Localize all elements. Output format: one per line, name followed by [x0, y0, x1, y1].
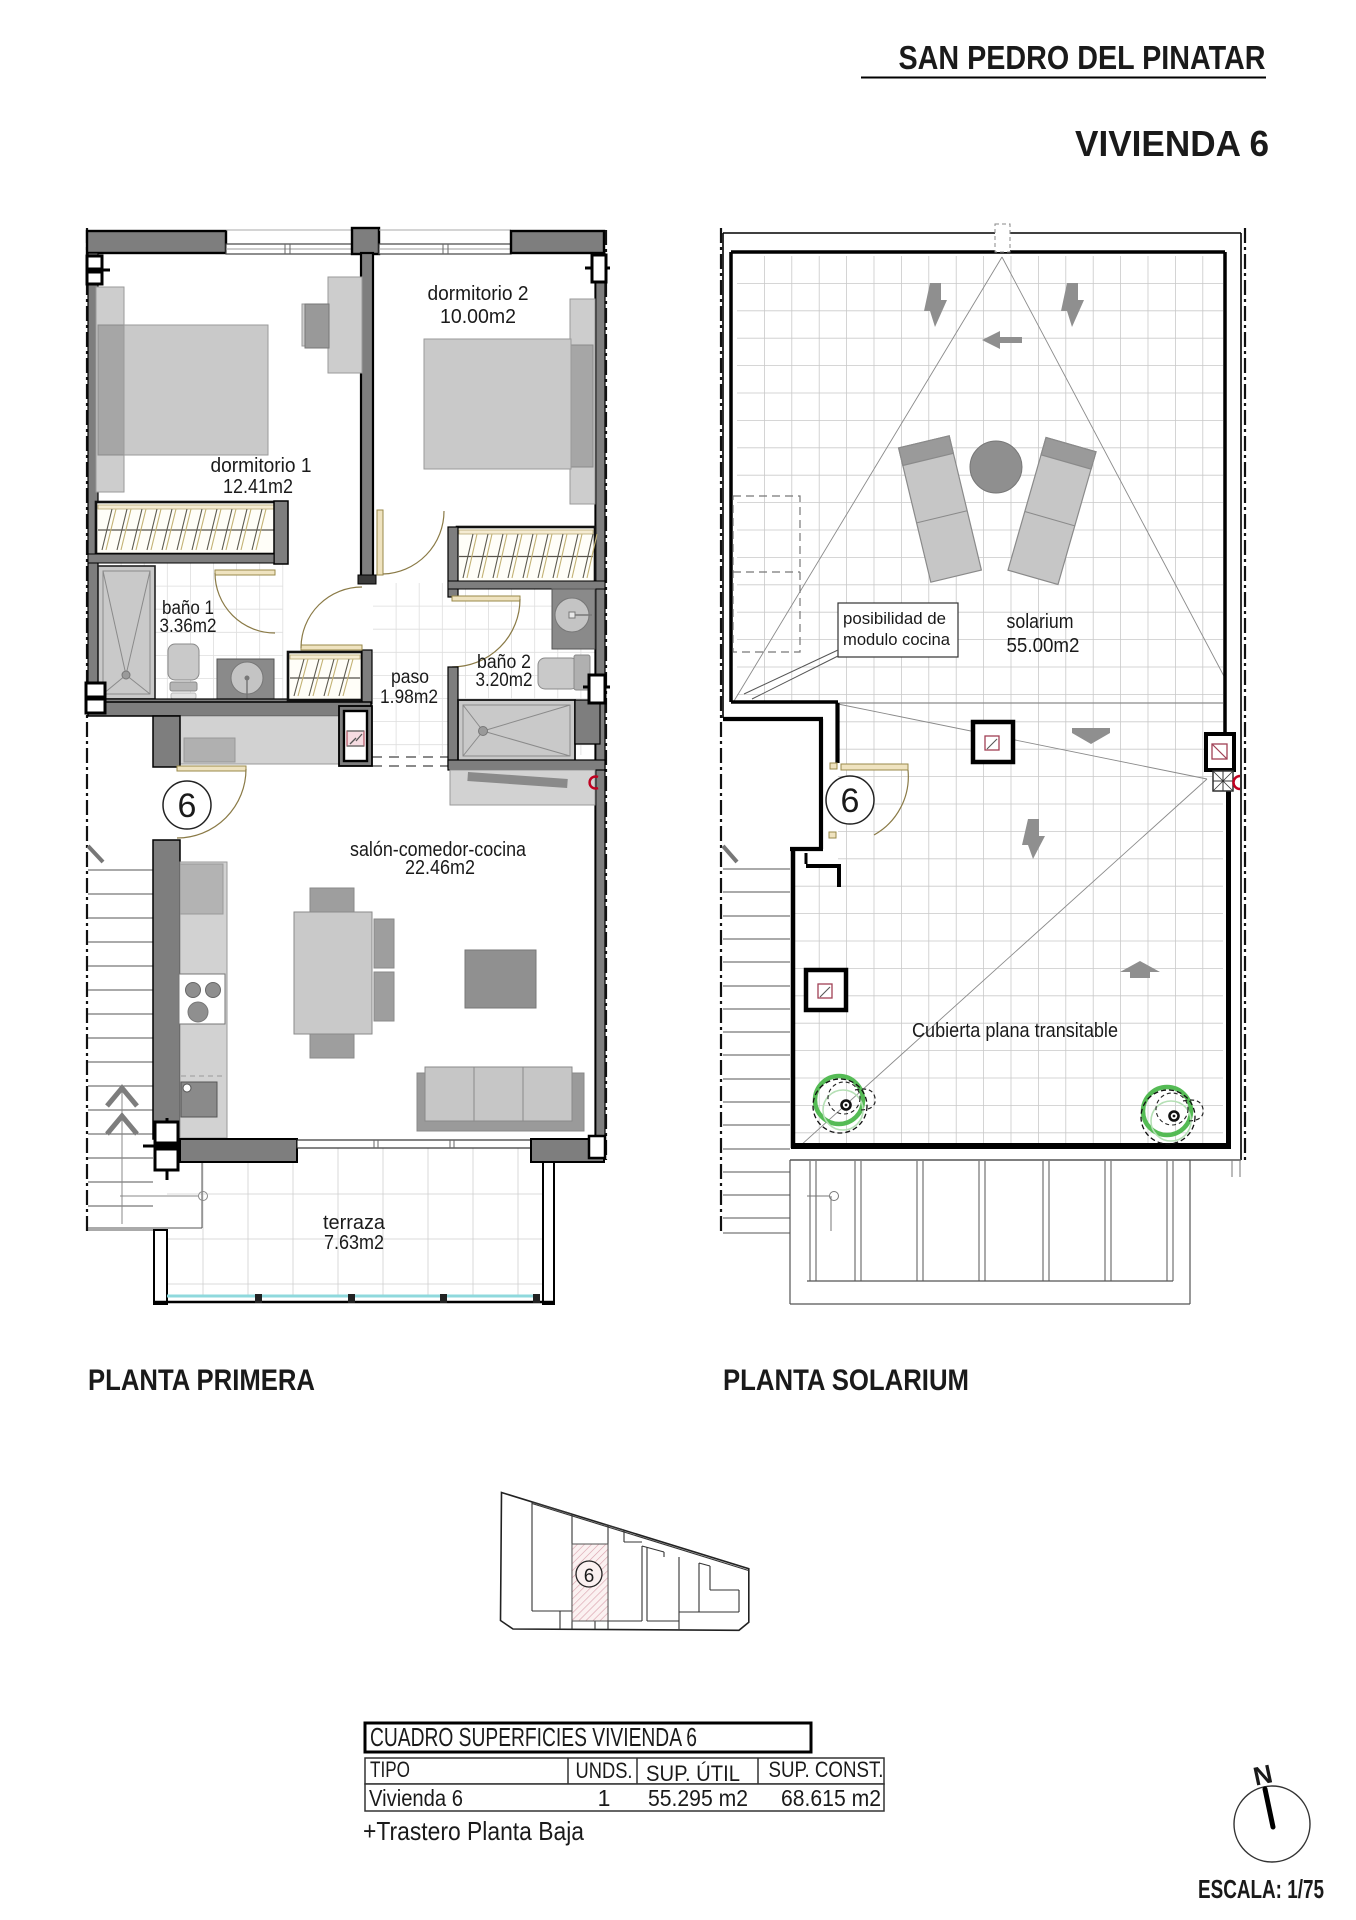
svg-text:ESCALA: 1/75: ESCALA: 1/75: [1198, 1874, 1324, 1904]
svg-text:TIPO: TIPO: [370, 1757, 410, 1782]
svg-text:dormitorio 1: dormitorio 1: [211, 455, 312, 477]
svg-text:3.36m2: 3.36m2: [160, 616, 217, 637]
svg-text:1: 1: [598, 1785, 611, 1811]
svg-text:1.98m2: 1.98m2: [380, 687, 438, 708]
svg-text:solarium: solarium: [1007, 611, 1074, 633]
svg-text:Vivienda 6: Vivienda 6: [369, 1785, 463, 1811]
svg-text:SUP. CONST.: SUP. CONST.: [769, 1757, 884, 1782]
svg-text:VIVIENDA 6: VIVIENDA 6: [1075, 123, 1269, 164]
svg-text:6: 6: [841, 782, 860, 820]
svg-text:6: 6: [178, 787, 197, 825]
svg-text:PLANTA SOLARIUM: PLANTA SOLARIUM: [723, 1364, 969, 1397]
svg-text:SUP. ÚTIL: SUP. ÚTIL: [646, 1761, 740, 1786]
svg-text:terraza: terraza: [323, 1212, 386, 1234]
svg-text:7.63m2: 7.63m2: [324, 1232, 384, 1254]
svg-text:6: 6: [584, 1566, 595, 1587]
svg-text:CUADRO SUPERFICIES VIVIENDA 6: CUADRO SUPERFICIES VIVIENDA 6: [370, 1722, 697, 1752]
svg-text:55.00m2: 55.00m2: [1007, 635, 1080, 657]
svg-text:PLANTA PRIMERA: PLANTA PRIMERA: [88, 1364, 315, 1397]
svg-text:22.46m2: 22.46m2: [405, 857, 475, 879]
svg-text:paso: paso: [391, 667, 429, 688]
svg-text:modulo cocina: modulo cocina: [843, 630, 951, 649]
svg-text:UNDS.: UNDS.: [576, 1758, 633, 1783]
svg-text:dormitorio 2: dormitorio 2: [428, 283, 529, 305]
svg-text:10.00m2: 10.00m2: [440, 306, 516, 328]
svg-text:SAN PEDRO DEL PINATAR: SAN PEDRO DEL PINATAR: [899, 39, 1266, 76]
svg-text:3.20m2: 3.20m2: [476, 670, 533, 691]
svg-text:12.41m2: 12.41m2: [223, 476, 293, 498]
svg-text:55.295 m2: 55.295 m2: [648, 1785, 748, 1811]
svg-text:68.615 m2: 68.615 m2: [781, 1785, 881, 1811]
svg-text:posibilidad de: posibilidad de: [843, 609, 946, 628]
svg-text:+Trastero Planta Baja: +Trastero Planta Baja: [363, 1816, 584, 1846]
svg-text:Cubierta plana transitable: Cubierta plana transitable: [912, 1020, 1118, 1042]
